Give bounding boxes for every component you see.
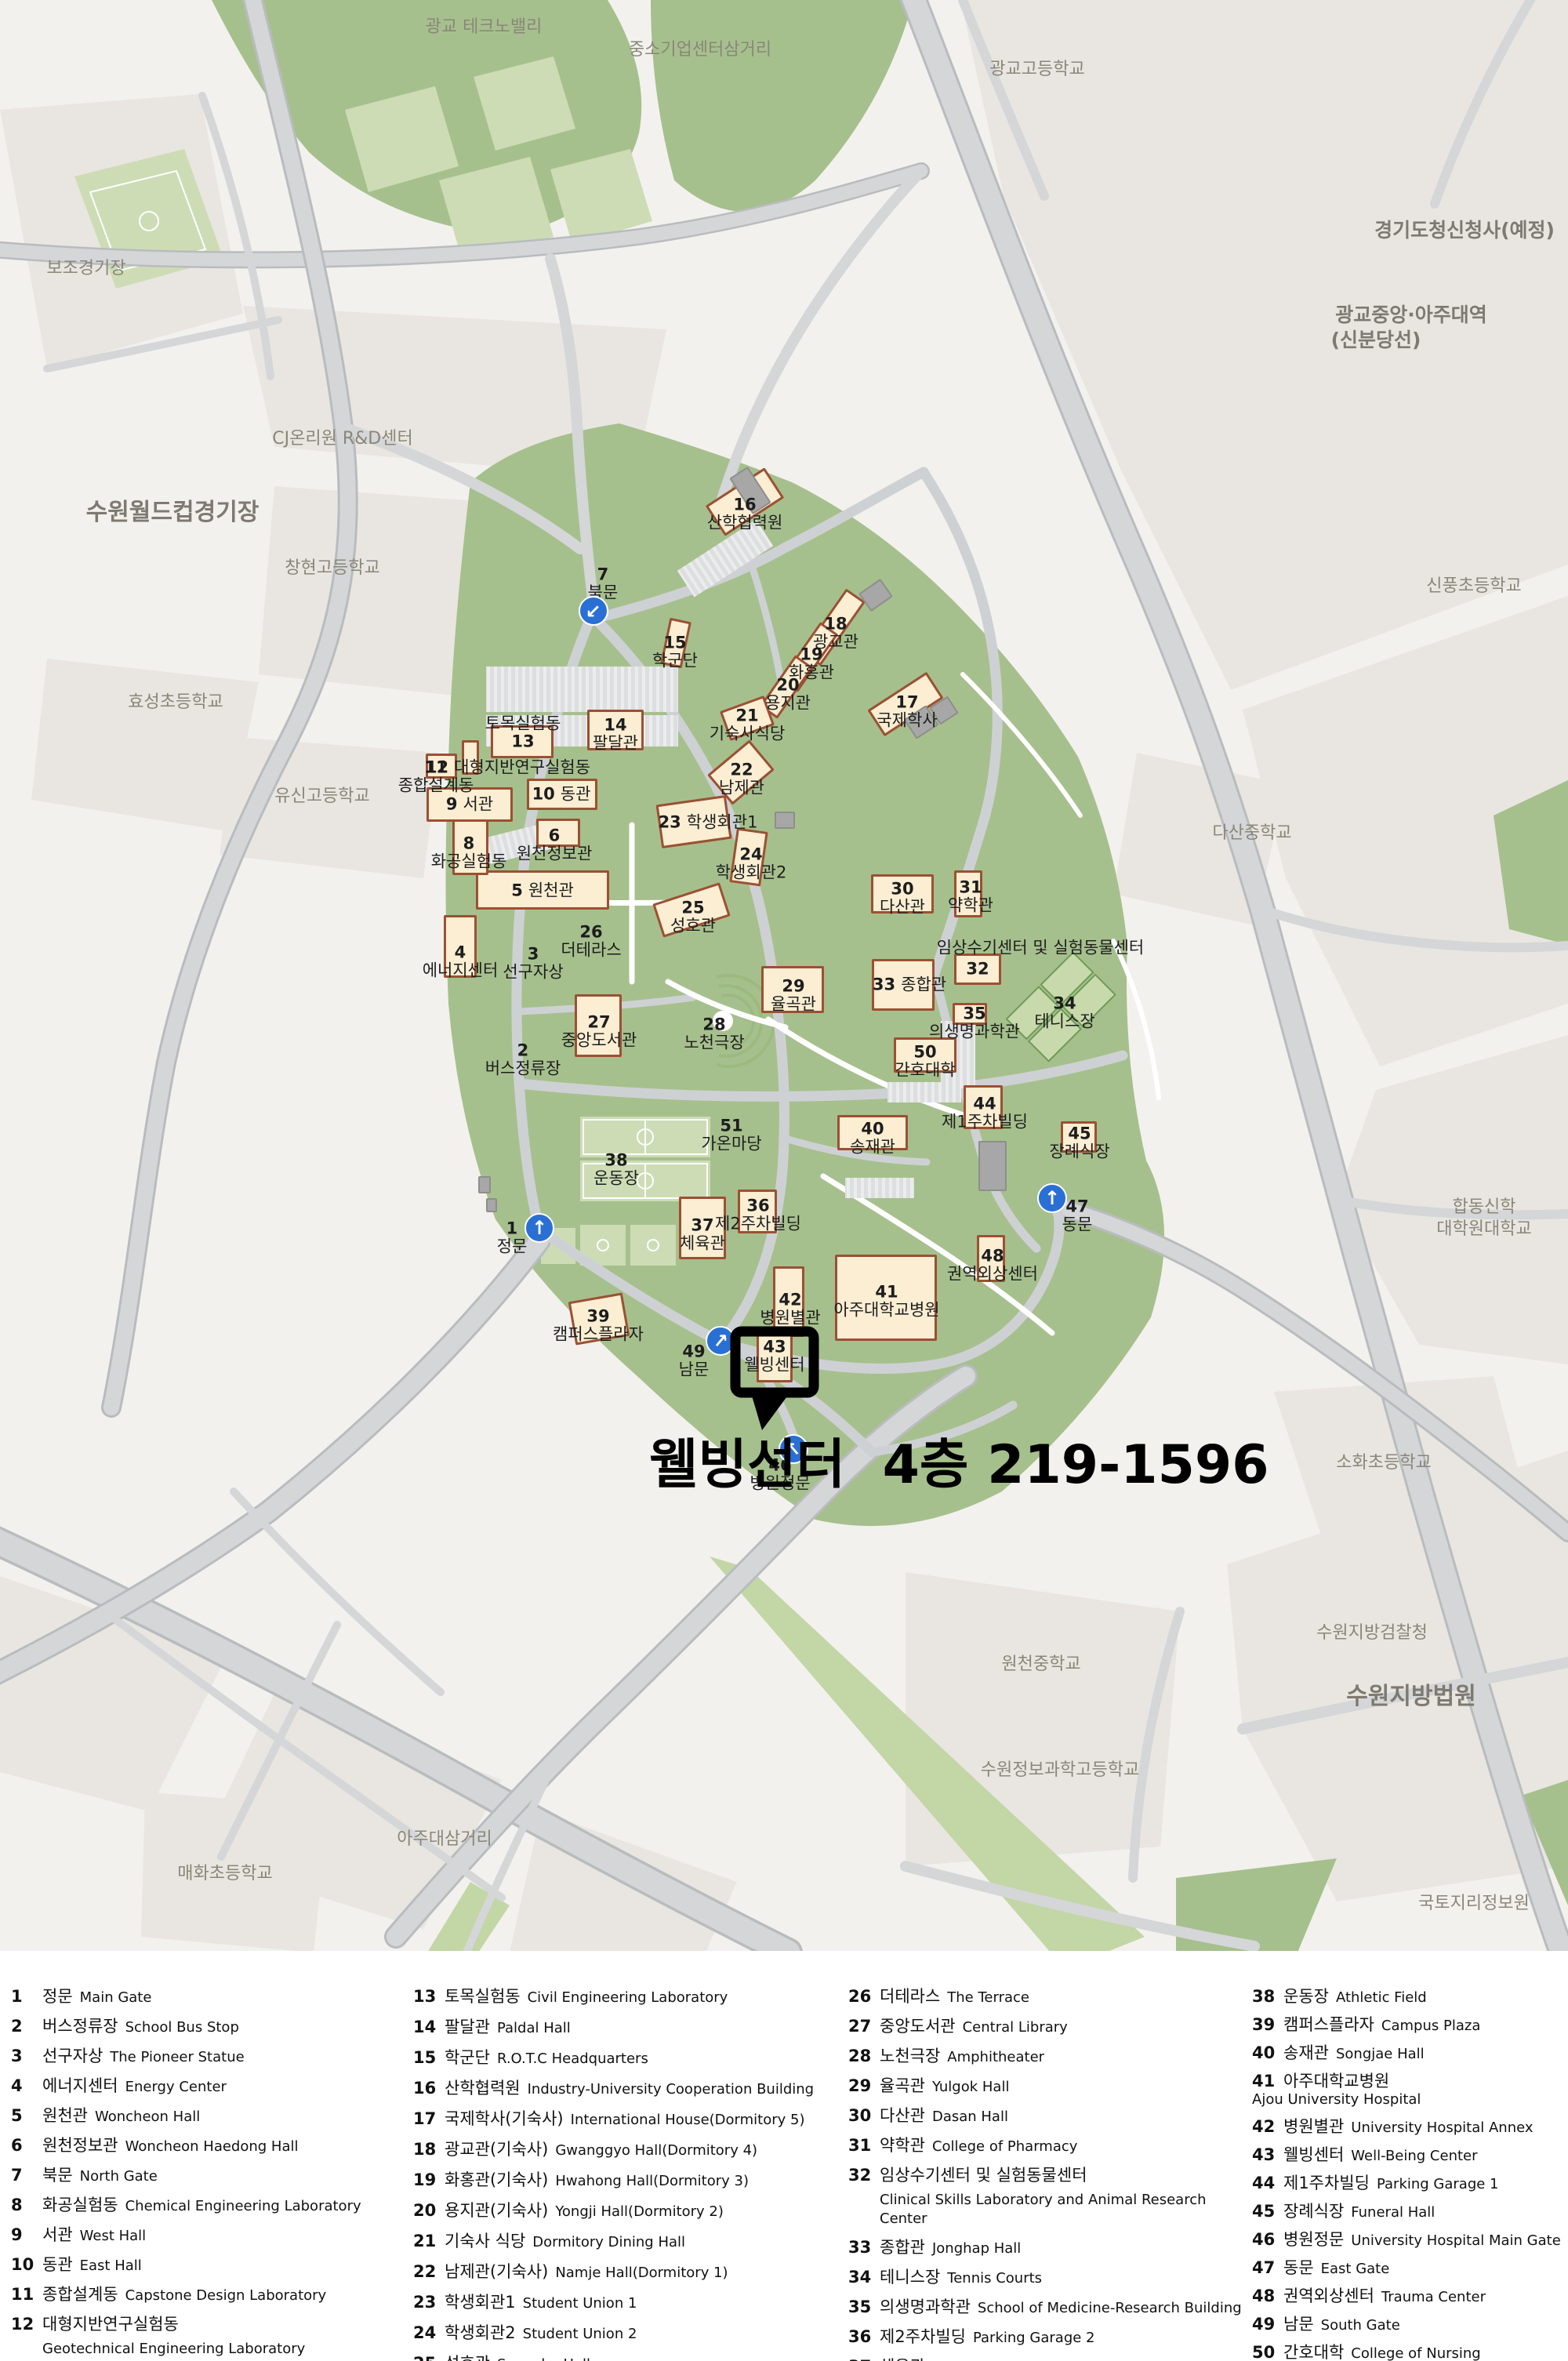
legend-item: 2 버스정류장 School Bus Stop (11, 2017, 403, 2037)
legend-item-english: Hwahong Hall(Dormitory 3) (555, 2172, 749, 2191)
legend-item-number: 7 (11, 2166, 42, 2185)
legend-item: 37 체육관 Gymnasium (848, 2357, 1244, 2361)
building-number: 17 (895, 693, 918, 711)
building-label: 8 화공실험동 (431, 834, 507, 870)
legend-item-number: 20 (413, 2201, 445, 2220)
legend-item-number: 9 (11, 2225, 42, 2244)
area-name: 운동장 (593, 1169, 639, 1187)
area-label: 3 선구자상 (503, 945, 563, 980)
building-name: 병원별관 (760, 1309, 820, 1327)
building-name: 학생회관2 (716, 863, 787, 881)
area-name: 버스정류장 (485, 1059, 561, 1077)
legend-item-korean: 대형지반연구실험동 (42, 2315, 179, 2334)
legend-item-number: 33 (848, 2238, 880, 2257)
building-label: 13 토목실험동 (485, 714, 561, 750)
legend-item: 44 제1주차빌딩 Parking Garage 1 (1252, 2174, 1562, 2194)
legend-item-number: 32 (848, 2166, 880, 2185)
legend-item-number: 27 (848, 2017, 880, 2036)
legend-item-english: East Hall (80, 2257, 142, 2276)
legend-item-english: Chemical Engineering Laboratory (125, 2197, 361, 2216)
legend-item: 15 학군단 R.O.T.C Headquarters (413, 2048, 837, 2069)
legend-item-korean: 국제학사(기숙사) (445, 2109, 564, 2128)
city-label: 국토지리정보원 (1418, 1889, 1530, 1914)
legend-item-number: 13 (413, 1987, 445, 2006)
legend-item: 4 에너지센터 Energy Center (11, 2076, 403, 2097)
legend-item-number: 34 (848, 2268, 880, 2287)
legend-item-english: R.O.T.C Headquarters (497, 2050, 648, 2069)
non-campus-building (775, 812, 795, 829)
legend-item-korean: 정문 (42, 1987, 73, 2006)
legend-item-korean: 산학협력원 (445, 2079, 521, 2098)
legend-item: 40 송재관 Songjae Hall (1252, 2043, 1562, 2064)
legend-item-number: 37 (848, 2357, 880, 2361)
city-label: 아주대삼거리 (397, 1825, 492, 1850)
city-label: 광교 테크노밸리 (426, 13, 543, 38)
legend-item-english: Student Union 1 (523, 2294, 637, 2313)
legend-item: 5 원천관 Woncheon Hall (11, 2106, 403, 2127)
legend-item-number: 31 (848, 2136, 880, 2155)
building-number: 25 (681, 899, 704, 917)
legend-item-korean: 병원정문 (1283, 2230, 1344, 2249)
city-label: CJ온리원 R&D센터 (272, 424, 412, 449)
area-number: 51 (720, 1117, 742, 1135)
city-label: 중소기업센터삼거리 (629, 35, 771, 60)
legend-item: 1 정문 Main Gate (11, 1987, 403, 2007)
building-label: 24 학생회관2 (716, 845, 787, 881)
building-number: 29 (782, 977, 804, 995)
building-number: 13 (511, 732, 534, 750)
legend-item-korean: 남문 (1283, 2315, 1314, 2334)
area-name: 더테라스 (561, 941, 621, 959)
building-number: 14 (604, 716, 626, 734)
building-number: 6 (549, 826, 561, 845)
building-name: 종합설계동 (398, 776, 474, 794)
legend-item-korean: 간호대학 (1283, 2343, 1344, 2361)
building-name: 웰빙센터 (744, 1356, 804, 1374)
legend-item: 27 중앙도서관 Central Library (848, 2017, 1244, 2037)
city-label: 광교고등학교 (989, 55, 1084, 80)
legend-item-english: Clinical Skills Laboratory and Animal Re… (880, 2191, 1244, 2228)
legend-item: 24 학생회관2 Student Union 2 (413, 2323, 837, 2344)
gate-arrow-icon: ↑ (1044, 1189, 1060, 1208)
legend-item-number: 14 (413, 2018, 445, 2036)
building-name: 성호관 (670, 917, 716, 935)
building-name: 토목실험동 (485, 714, 561, 732)
building-number: 40 (861, 1120, 884, 1138)
legend-item-korean: 북문 (42, 2166, 73, 2185)
building-label: 45 장례식장 (1049, 1124, 1109, 1160)
area-label: 51 가온마당 (701, 1117, 761, 1152)
area-number: 38 (604, 1151, 627, 1169)
legend-item: 18 광교관(기숙사) Gwanggyo Hall(Dormitory 4) (413, 2140, 837, 2160)
legend-item-number: 1 (11, 1987, 42, 2006)
legend-item: 22 남제관(기숙사) Namje Hall(Dormitory 1) (413, 2262, 837, 2283)
building-name: 종합관 (901, 976, 946, 994)
building-label: 29 율곡관 (771, 977, 816, 1012)
gate-arrow-icon: ↑ (581, 598, 605, 623)
area-name: 임상수기센터 및 실험동물센터 (937, 939, 1145, 957)
legend-item-english: The Terrace (947, 1989, 1029, 2007)
legend-item-english: Central Library (963, 2018, 1068, 2037)
area-number: 28 (702, 1015, 725, 1033)
legend-item-number: 5 (11, 2106, 42, 2125)
area-number: 3 (528, 945, 539, 963)
legend-item: 12 대형지반연구실험동 Geotechnical Engineering La… (11, 2315, 403, 2359)
legend-item: 7 북문 North Gate (11, 2166, 403, 2186)
building-name: 에너지센터 (423, 961, 499, 979)
legend-item-english: East Gate (1321, 2260, 1390, 2279)
building-number: 43 (763, 1338, 786, 1356)
legend-item-number: 6 (11, 2136, 42, 2155)
building-label: 15 학군단 (652, 634, 698, 669)
legend-item: 25 성호관 Seongho Hall (413, 2354, 837, 2361)
legend-item-number: 16 (413, 2079, 445, 2098)
building-number: 35 (963, 1004, 985, 1022)
building-number: 45 (1068, 1124, 1091, 1142)
legend-item-number: 38 (1252, 1987, 1283, 2006)
building-number: 50 (913, 1043, 936, 1061)
building-number: 39 (586, 1307, 609, 1325)
legend-item-english: Gwanggyo Hall(Dormitory 4) (555, 2141, 757, 2160)
annotation-text: 웰빙선터 4층 219-1596 (649, 1421, 1269, 1498)
area-label: 1 정문 (497, 1219, 528, 1255)
legend-item: 47 동문 East Gate (1252, 2258, 1562, 2279)
legend-item: 43 웰빙센터 Well-Being Center (1252, 2145, 1562, 2166)
building-name: 산학협력원 (707, 514, 783, 532)
legend-item-korean: 버스정류장 (42, 2017, 118, 2036)
legend-item-korean: 화공실험동 (42, 2196, 118, 2214)
legend-item-number: 10 (11, 2255, 42, 2274)
legend-item: 32 임상수기센터 및 실험동물센터 Clinical Skills Labor… (848, 2166, 1244, 2228)
building-label: 43 웰빙센터 (744, 1338, 804, 1373)
legend-item-number: 41 (1252, 2072, 1283, 2090)
legend-item-number: 11 (11, 2285, 42, 2304)
legend-item: 33 종합관 Jonghap Hall (848, 2238, 1244, 2258)
building-label: 23 학생회관1 (659, 814, 758, 832)
legend-item-english: Dasan Hall (932, 2108, 1008, 2127)
legend-item-korean: 선구자상 (42, 2047, 103, 2065)
building-number: 15 (663, 634, 686, 652)
legend-item-english: Parking Garage 1 (1377, 2175, 1499, 2194)
legend-item-english: School of Medicine-Research Building (978, 2299, 1242, 2318)
legend-item: 36 제2주차빌딩 Parking Garage 2 (848, 2327, 1244, 2348)
legend-item-number: 21 (413, 2232, 445, 2250)
building-label: 4 에너지센터 (423, 943, 499, 979)
legend-item-korean: 에너지센터 (42, 2076, 118, 2095)
building-number: 36 (746, 1197, 769, 1215)
building-name: 캠퍼스플라자 (553, 1325, 644, 1343)
legend-item-english: Well-Being Center (1351, 2147, 1477, 2166)
legend-item: 41 아주대학교병원 Ajou University Hospital (1252, 2072, 1562, 2109)
building-label: 50 간호대학 (895, 1043, 955, 1078)
legend-item-number: 4 (11, 2076, 42, 2095)
area-number: 34 (1053, 994, 1076, 1012)
area-label: 28 노천극장 (684, 1015, 744, 1051)
legend-item: 9 서관 West Hall (11, 2225, 403, 2246)
building-number: 8 (463, 834, 475, 852)
legend-item-number: 3 (11, 2047, 42, 2065)
building-label: 30 다산관 (880, 880, 925, 915)
legend-item-english: International House(Dormitory 5) (571, 2111, 805, 2130)
legend-item-korean: 제1주차빌딩 (1283, 2174, 1370, 2192)
city-label: 원천중학교 (1001, 1650, 1080, 1675)
legend-item-english: Amphitheater (947, 2048, 1044, 2067)
building-label: 37 체육관 (680, 1216, 725, 1251)
legend-item-number: 23 (413, 2293, 445, 2312)
legend-item: 8 화공실험동 Chemical Engineering Laboratory (11, 2196, 403, 2216)
building-number: 22 (730, 761, 753, 779)
city-label: 효성초등학교 (128, 688, 223, 713)
city-label: 수원정보과학고등학교 (981, 1756, 1139, 1781)
building-number: 31 (959, 878, 982, 896)
legend-item-number: 39 (1252, 2015, 1283, 2034)
building-name: 원천관 (528, 882, 574, 900)
area-number: 2 (517, 1041, 529, 1059)
building-label: 5 원천관 (511, 882, 574, 900)
area-name: 남문 (679, 1360, 710, 1378)
city-label: 소화초등학교 (1336, 1448, 1431, 1473)
area-label: 38 운동장 (593, 1151, 639, 1186)
legend-item: 6 원천정보관 Woncheon Haedong Hall (11, 2136, 403, 2156)
legend-item-english: Industry-University Cooperation Building (528, 2080, 814, 2099)
legend-item: 23 학생회관1 Student Union 1 (413, 2293, 837, 2313)
legend-item-english: North Gate (80, 2167, 158, 2186)
legend-item-korean: 학군단 (445, 2048, 490, 2067)
building-label: 33 종합관 (873, 976, 946, 994)
legend-item-english: School Bus Stop (125, 2018, 239, 2037)
building-number: 20 (776, 676, 799, 694)
area-name: 테니스장 (1034, 1012, 1094, 1030)
legend-item-english: University Hospital Annex (1351, 2119, 1533, 2138)
legend-item-korean: 광교관(기숙사) (445, 2140, 548, 2159)
building-name: 다산관 (880, 898, 925, 916)
building-number: 30 (891, 880, 913, 898)
area-name: 가온마당 (701, 1135, 761, 1153)
legend-item-korean: 토목실험동 (445, 1987, 521, 2006)
building-name: 팔달관 (593, 734, 638, 752)
legend-item: 10 동관 East Hall (11, 2255, 403, 2276)
building-number: 5 (511, 882, 523, 900)
legend-item: 13 토목실험동 Civil Engineering Laboratory (413, 1987, 837, 2007)
legend-item-english: Namje Hall(Dormitory 1) (555, 2264, 728, 2283)
building-name: 제1주차빌딩 (942, 1113, 1028, 1131)
building-name: 약학관 (948, 896, 993, 914)
legend-item-number: 46 (1252, 2230, 1283, 2249)
legend-item-korean: 동관 (42, 2255, 73, 2274)
building-label: 14 팔달관 (593, 716, 638, 751)
legend-item-number: 45 (1252, 2202, 1283, 2221)
legend-item-english: Jonghap Hall (932, 2239, 1021, 2258)
building-number: 16 (733, 496, 756, 514)
legend-item-number: 35 (848, 2297, 880, 2316)
building-name: 기숙사식당 (710, 725, 786, 743)
legend-item: 16 산학협력원 Industry-University Cooperation… (413, 2079, 837, 2099)
legend-item-number: 19 (413, 2170, 445, 2189)
legend-item-korean: 용지관(기숙사) (445, 2201, 548, 2220)
legend-item: 42 병원별관 University Hospital Annex (1252, 2117, 1562, 2138)
legend-item-english: University Hospital Main Gate (1351, 2232, 1561, 2250)
legend-item: 19 화홍관(기숙사) Hwahong Hall(Dormitory 3) (413, 2170, 837, 2191)
legend-item-korean: 웰빙센터 (1283, 2145, 1344, 2164)
legend-item-english: Civil Engineering Laboratory (528, 1989, 728, 2007)
legend-item-korean: 종합설계동 (42, 2285, 118, 2304)
building-label: 10 동관 (532, 786, 591, 804)
building-name: 동관 (561, 786, 591, 804)
city-label: 광교중앙·아주대역 (1335, 300, 1487, 328)
legend-item-number: 2 (11, 2017, 42, 2036)
area-label: 26 더테라스 (561, 923, 621, 958)
legend-item-number: 22 (413, 2262, 445, 2281)
legend-item-english: Geotechnical Engineering Laboratory (42, 2340, 403, 2359)
legend-item-korean: 화홍관(기숙사) (445, 2170, 548, 2189)
legend-item: 38 운동장 Athletic Field (1252, 1987, 1562, 2007)
area-number: 47 (1065, 1197, 1088, 1215)
gate-arrow-icon: ↑ (709, 1328, 733, 1353)
legend-item: 35 의생명과학관 School of Medicine-Research Bu… (848, 2297, 1244, 2318)
building-name: 학생회관1 (687, 814, 758, 832)
legend-item: 17 국제학사(기숙사) International House(Dormito… (413, 2109, 837, 2130)
legend-item-korean: 제2주차빌딩 (880, 2327, 966, 2346)
building-label: 21 기숙사식당 (710, 706, 786, 742)
legend-item-korean: 약학관 (880, 2136, 925, 2155)
legend-item-number: 42 (1252, 2117, 1283, 2136)
legend-item-number: 44 (1252, 2174, 1283, 2192)
legend-item: 21 기숙사 식당 Dormitory Dining Hall (413, 2232, 837, 2252)
city-label: 수원월드컵경기장 (86, 492, 260, 527)
area-number: 49 (682, 1342, 705, 1360)
building-label: 44 제1주차빌딩 (942, 1095, 1028, 1130)
legend-item-korean: 중앙도서관 (880, 2017, 956, 2036)
city-label: 유신고등학교 (274, 782, 369, 807)
legend-item-english: Athletic Field (1336, 1989, 1427, 2007)
area-number: 1 (506, 1219, 518, 1237)
building-number: 12 (426, 759, 448, 777)
legend-item-korean: 더테라스 (880, 1987, 940, 2006)
legend: 1 정문 Main Gate 2 버스정류장 School Bus Stop 3… (0, 1951, 1568, 2361)
building-name: 서관 (463, 796, 493, 814)
legend-item-number: 47 (1252, 2258, 1283, 2277)
building-label: 9 서관 (446, 796, 493, 814)
city-label: 경기도청신청사(예정) (1374, 215, 1555, 243)
building-number: 23 (659, 814, 681, 832)
building-label: 40 송재관 (850, 1120, 895, 1155)
gate-marker-icon: ↑ (579, 596, 608, 626)
legend-item-english: Trauma Center (1381, 2288, 1486, 2307)
campus-map-screenshot: 4 에너지센터 5 원천관 6 원천정보관 8 화공실험동 9 서관 10 동관 (0, 0, 1568, 2361)
legend-item-korean: 운동장 (1283, 1987, 1329, 2006)
legend-item-number: 18 (413, 2140, 445, 2159)
legend-item-number: 28 (848, 2047, 880, 2065)
legend-column-1: 1 정문 Main Gate 2 버스정류장 School Bus Stop 3… (11, 1987, 403, 2361)
legend-item-english: Yulgok Hall (932, 2078, 1010, 2097)
legend-item-korean: 남제관(기숙사) (445, 2262, 548, 2281)
legend-item-english: Woncheon Hall (95, 2108, 200, 2127)
legend-item: 20 용지관(기숙사) Yongji Hall(Dormitory 2) (413, 2201, 837, 2221)
building-number: 4 (455, 943, 466, 961)
building-number: 44 (973, 1095, 996, 1113)
legend-item-english: The Pioneer Statue (110, 2048, 244, 2067)
legend-item-number: 17 (413, 2109, 445, 2128)
legend-item-korean: 임상수기센터 및 실험동물센터 (880, 2166, 1087, 2185)
legend-item-number: 40 (1252, 2043, 1283, 2062)
building-name: 학군단 (652, 652, 698, 670)
building-number: 21 (735, 706, 758, 725)
area-label: 임상수기센터 및 실험동물센터 (937, 939, 1145, 957)
gate-marker-icon: ↑ (524, 1213, 554, 1243)
legend-item-korean: 다산관 (880, 2106, 925, 2125)
legend-item-english: College of Nursing (1351, 2345, 1480, 2361)
building-label: 39 캠퍼스플라자 (553, 1307, 644, 1342)
gate-marker-icon: ↑ (706, 1326, 735, 1356)
legend-item-english: Tennis Courts (947, 2269, 1042, 2288)
legend-item: 26 더테라스 The Terrace (848, 1987, 1244, 2007)
non-campus-building (486, 1198, 497, 1212)
building-number: 19 (800, 645, 822, 663)
building-name: 의생명과학관 (929, 1022, 1020, 1041)
building-name: 율곡관 (771, 995, 816, 1013)
non-campus-building (478, 1176, 491, 1193)
building-name: 권역외상센터 (947, 1265, 1038, 1283)
building-name: 원천정보관 (517, 845, 593, 863)
building-label: 12 대형지반연구실험동 (426, 759, 590, 777)
city-label: 신풍초등학교 (1426, 572, 1521, 597)
city-label: 보조경기장 (46, 254, 125, 279)
legend-item: 48 권역외상센터 Trauma Center (1252, 2287, 1562, 2307)
legend-item-korean: 종합관 (880, 2238, 925, 2257)
area-number: 26 (579, 923, 602, 941)
building-label: 6 원천정보관 (517, 826, 593, 862)
building-name: 중앙도서관 (561, 1031, 637, 1049)
building-number: 9 (446, 796, 458, 814)
city-label: 매화초등학교 (177, 1859, 272, 1884)
legend-item-english: Songjae Hall (1336, 2045, 1425, 2064)
legend-item-english: Main Gate (80, 1989, 152, 2007)
building-number: 18 (824, 615, 847, 633)
legend-item-korean: 송재관 (1283, 2043, 1329, 2062)
legend-item-number: 50 (1252, 2343, 1283, 2361)
building-name: 대형지반연구실험동 (454, 759, 590, 777)
non-campus-building (978, 1141, 1007, 1191)
legend-item: 30 다산관 Dasan Hall (848, 2106, 1244, 2127)
building-label: 25 성호관 (670, 899, 716, 934)
legend-item-number: 24 (413, 2323, 445, 2342)
building-name: 체육관 (680, 1234, 725, 1252)
legend-item-korean: 캠퍼스플라자 (1283, 2015, 1374, 2034)
legend-item-korean: 기숙사 식당 (445, 2232, 525, 2250)
building-number: 27 (587, 1013, 610, 1031)
building-number: 24 (739, 845, 762, 863)
legend-column-3: 26 더테라스 The Terrace 27 중앙도서관 Central Lib… (848, 1987, 1244, 2361)
area-label: 2 버스정류장 (485, 1041, 561, 1077)
legend-item-english: Capstone Design Laboratory (125, 2287, 327, 2305)
legend-item-korean: 장례식장 (1283, 2202, 1344, 2221)
building-label: 36 제2주차빌딩 (715, 1197, 801, 1232)
building-label: 22 남제관 (719, 761, 764, 796)
legend-item-number: 26 (848, 1987, 880, 2006)
legend-item-english: Yongji Hall(Dormitory 2) (555, 2203, 724, 2221)
building-label: 17 국제학사 (877, 693, 937, 728)
building-name: 아주대학교병원 (833, 1301, 939, 1319)
area-number: 7 (597, 565, 609, 583)
building-number: 48 (981, 1247, 1004, 1265)
legend-item-korean: 성호관 (445, 2354, 490, 2361)
city-label: 대학원대학교 (1436, 1215, 1531, 1240)
legend-item-korean: 율곡관 (880, 2076, 925, 2095)
legend-item-english: South Gate (1321, 2316, 1400, 2335)
legend-item-korean: 서관 (42, 2225, 73, 2244)
legend-item: 29 율곡관 Yulgok Hall (848, 2076, 1244, 2097)
legend-item-korean: 체육관 (880, 2357, 925, 2361)
